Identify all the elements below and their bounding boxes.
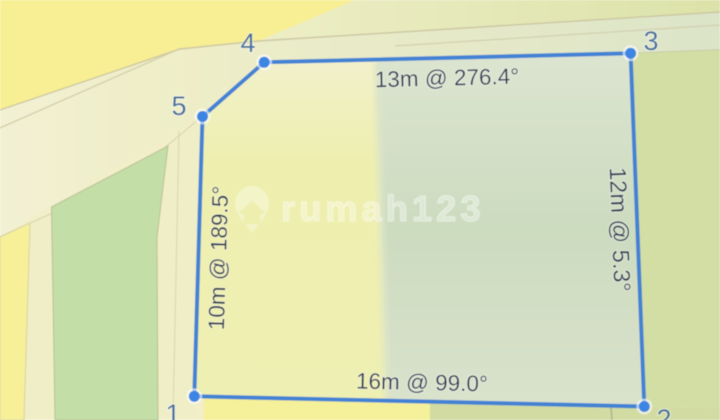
svg-text:2: 2 <box>656 404 671 420</box>
svg-text:10m @ 189.5°: 10m @ 189.5° <box>204 185 233 330</box>
svg-text:rumah123: rumah123 <box>281 188 485 229</box>
svg-text:13m @ 276.4°: 13m @ 276.4° <box>375 64 520 93</box>
svg-text:16m @ 99.0°: 16m @ 99.0° <box>356 369 488 397</box>
svg-text:12m @ 5.3°: 12m @ 5.3° <box>605 167 636 293</box>
svg-text:3: 3 <box>643 26 658 56</box>
svg-text:4: 4 <box>240 28 255 58</box>
svg-text:5: 5 <box>171 91 186 121</box>
svg-text:1: 1 <box>165 399 180 420</box>
